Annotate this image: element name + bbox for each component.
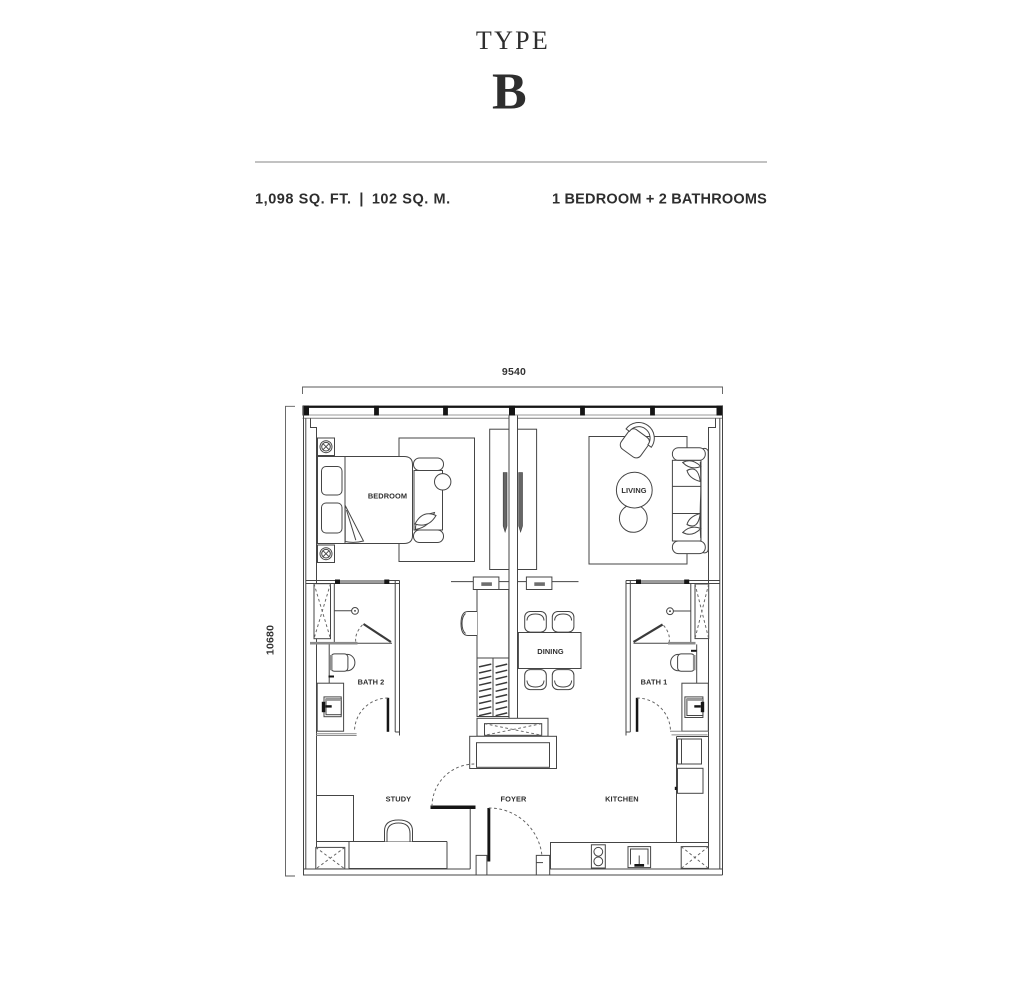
svg-text:1 BEDROOM + 2 BATHROOMS: 1 BEDROOM + 2 BATHROOMS [552, 192, 767, 208]
svg-text:B: B [492, 64, 527, 121]
svg-text:STUDY: STUDY [386, 794, 412, 803]
svg-text:KITCHEN: KITCHEN [605, 794, 639, 803]
svg-text:BEDROOM: BEDROOM [368, 491, 407, 500]
svg-text:TYPE: TYPE [476, 26, 550, 55]
svg-text:1,098 SQ. FT. | 102 SQ. M.: 1,098 SQ. FT. | 102 SQ. M. [255, 192, 451, 208]
svg-text:BATH 2: BATH 2 [358, 677, 385, 686]
svg-text:BATH 1: BATH 1 [641, 677, 668, 686]
svg-text:DINING: DINING [537, 647, 564, 656]
svg-text:10680: 10680 [265, 625, 277, 655]
svg-text:FOYER: FOYER [501, 794, 528, 803]
svg-text:LIVING: LIVING [621, 486, 646, 495]
svg-text:9540: 9540 [502, 366, 526, 378]
